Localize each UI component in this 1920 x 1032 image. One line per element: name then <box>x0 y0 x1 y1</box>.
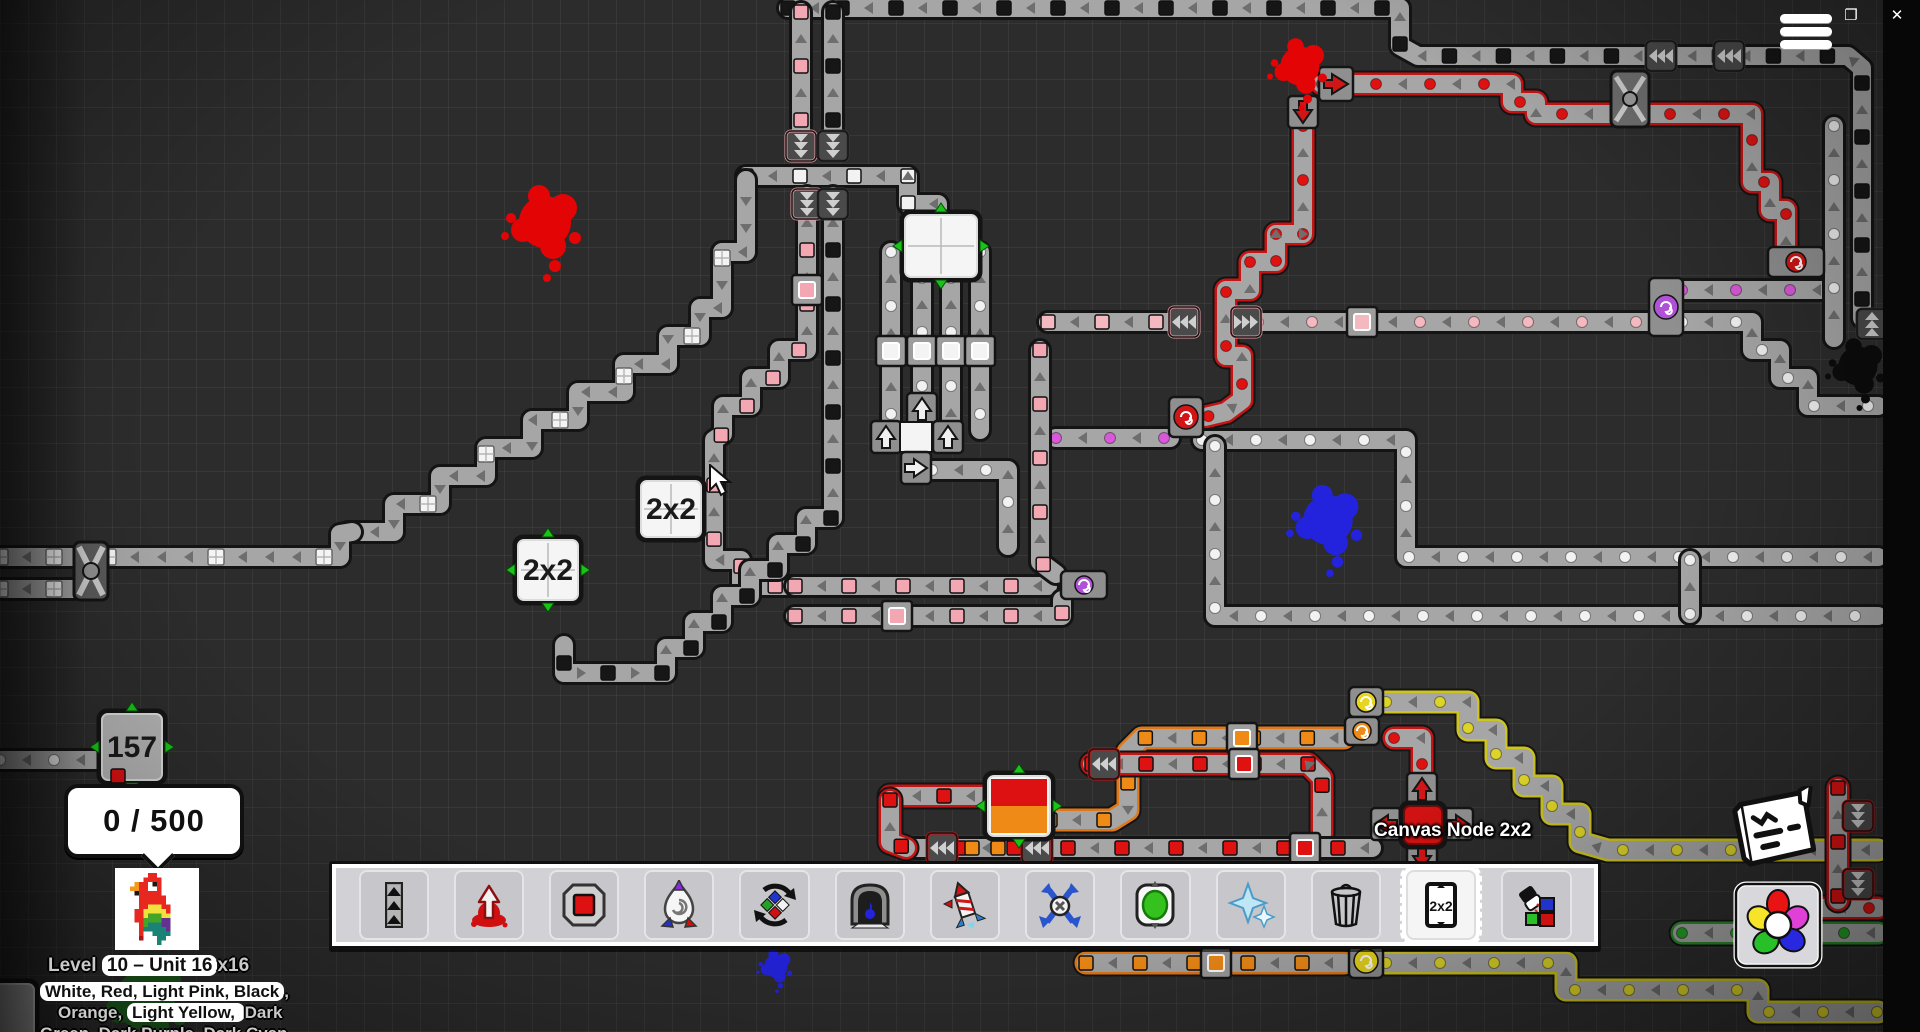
target-image-card <box>115 868 199 950</box>
tunnel-icon <box>845 880 895 930</box>
toolbar-item-trash[interactable] <box>1311 870 1381 940</box>
svg-text:157: 157 <box>107 731 157 764</box>
close-button[interactable]: ✕ <box>1874 0 1920 30</box>
rotator-icon <box>750 880 800 930</box>
parrot-pixel-art <box>121 873 193 945</box>
counter-value: 0 / 500 <box>103 803 205 839</box>
toolbar-item-rotator[interactable] <box>739 870 809 940</box>
sparkle-icon <box>1226 880 1276 930</box>
palette-colors-line-3: Green, Dark Purple, Dark Cyan <box>40 1024 288 1032</box>
palette-button[interactable] <box>1732 880 1824 970</box>
toolbar-item-painter-rocket[interactable] <box>930 870 1000 940</box>
counter-bubble: 0 / 500 <box>64 784 244 858</box>
svg-text:2x2: 2x2 <box>1430 898 1454 914</box>
pencil-icon <box>1799 786 1813 806</box>
toolbar-item-paint-pump[interactable] <box>454 870 524 940</box>
notes-button[interactable] <box>1732 786 1824 870</box>
toolbar-item-canvas-node[interactable] <box>549 870 619 940</box>
svg-text:2x2: 2x2 <box>646 493 696 526</box>
offmap-strip <box>1883 0 1920 1032</box>
svg-text:2x2: 2x2 <box>523 554 573 587</box>
tooltip: Canvas Node 2x2 <box>1374 820 1531 842</box>
belt-icon <box>369 880 419 930</box>
restore-button[interactable]: ❐ <box>1828 0 1874 30</box>
toolbar-item-sparkle[interactable] <box>1216 870 1286 940</box>
palette-colors-line-1: White, Red, Light Pink, Black, <box>40 982 289 1002</box>
game-stage: 2x22x2157 — ❐ ✕ 0 / 500 Level 10 – Unit … <box>0 0 1920 1032</box>
canvas-node-2x2-icon: 2x2 <box>1416 880 1466 930</box>
paint-pump-icon <box>464 880 514 930</box>
toolbar-item-crossing[interactable] <box>1025 870 1095 940</box>
crossing-icon <box>1035 880 1085 930</box>
painter-rocket-icon <box>940 880 990 930</box>
sensor-icon <box>1130 880 1180 930</box>
toolbar: 2x2 <box>329 861 1601 949</box>
toolbar-item-canvas-node-2x2[interactable]: 2x2 <box>1406 870 1476 940</box>
window-controls: — ❐ ✕ <box>1782 0 1920 30</box>
eraser-icon <box>1511 880 1561 930</box>
toolbar-item-belt[interactable] <box>359 870 429 940</box>
toolbar-item-splitter[interactable] <box>644 870 714 940</box>
splitter-icon <box>654 880 704 930</box>
toolbar-item-eraser[interactable] <box>1501 870 1571 940</box>
toolbar-item-sensor[interactable] <box>1120 870 1190 940</box>
minimize-button[interactable]: — <box>1782 0 1828 30</box>
level-label: Level 10 – Unit 16x16 <box>48 955 249 977</box>
palette-colors-line-2: Orange, Light Yellow, Dark <box>58 1003 282 1023</box>
trash-icon <box>1321 880 1371 930</box>
canvas-node-icon <box>559 880 609 930</box>
toolbar-item-tunnel[interactable] <box>835 870 905 940</box>
